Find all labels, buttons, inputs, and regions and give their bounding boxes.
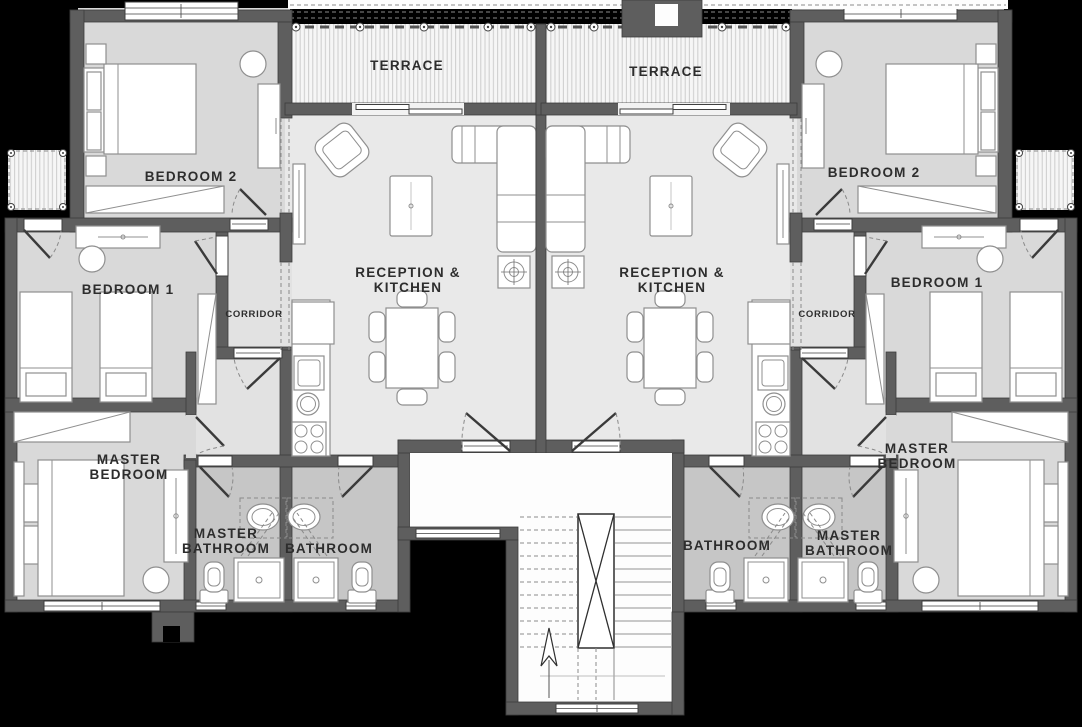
floor-plan-drawing: TERRACE TERRACE BEDROOM 2 BEDROOM 2 BEDR… [0,0,1082,727]
label-reception-right-1: RECEPTION & [619,265,724,280]
toilet [200,562,228,603]
label-master-bathroom-left-2: BATHROOM [182,541,270,556]
wardrobe [198,294,216,404]
room-balcony [8,150,66,210]
label-master-bathroom-left-1: MASTER [194,526,258,541]
stair-shaft [578,514,614,648]
master-bathroom-door-opening [198,456,232,466]
tall-cabinet [293,164,305,244]
label-bedroom1-right: BEDROOM 1 [891,275,984,290]
single-bed [100,292,152,402]
wardrobe [86,186,224,213]
single-bed [20,292,72,402]
label-master-bedroom-right-2: BEDROOM [878,456,957,471]
label-terrace-left: TERRACE [370,58,444,73]
entry-door-threshold [462,441,510,452]
window-stair-bottom [556,704,638,713]
side-table [240,51,266,77]
desk [76,226,160,248]
label-reception-right-2: KITCHEN [638,280,706,295]
sink [288,504,320,530]
label-master-bathroom-right-2: BATHROOM [805,543,893,558]
kitchen-sink [294,356,324,390]
label-master-bathroom-right-1: MASTER [817,528,881,543]
stove [292,422,326,456]
bathroom-door-opening [338,456,373,466]
desk-chair [79,246,105,272]
label-corridor-right: CORRIDOR [798,309,855,320]
label-bathroom-right: BATHROOM [683,538,771,553]
chimney [622,0,702,37]
burner [297,393,319,415]
fridge [292,302,334,344]
coffee-table [390,176,432,236]
label-master-bedroom-right-1: MASTER [885,441,949,456]
terrace-railing [288,0,541,31]
corridor-door-threshold [234,348,282,358]
side-table-crosshair [498,256,530,288]
balcony-door-opening [24,219,62,231]
sliding-door-terrace [352,103,464,115]
dresser [258,84,280,168]
stairwell [398,453,684,715]
label-reception-left-2: KITCHEN [374,280,442,295]
side-table [143,567,169,593]
floor-plan-page: TERRACE TERRACE BEDROOM 2 BEDROOM 2 BEDR… [0,0,1082,727]
nightstand [86,156,106,176]
nightstand [86,44,106,64]
double-bed [84,64,196,154]
label-reception-left-1: RECEPTION & [355,265,460,280]
roof-strip-right [792,0,1008,9]
master-bedroom-opening [186,415,196,458]
label-master-bedroom-left-1: MASTER [97,452,161,467]
label-bedroom2-right: BEDROOM 2 [828,165,921,180]
wardrobe [14,412,130,442]
bedroom1-door-opening [216,236,228,276]
window-bedroom2 [125,2,238,20]
toilet [348,562,376,603]
label-bedroom2-left: BEDROOM 2 [145,169,238,184]
window-master-bedroom [44,601,160,611]
bedroom2-door-threshold [230,219,268,230]
window-landing [416,529,500,538]
label-master-bedroom-left-2: BEDROOM [90,467,169,482]
label-corridor-left: CORRIDOR [225,309,282,320]
label-bedroom1-left: BEDROOM 1 [82,282,175,297]
label-terrace-right: TERRACE [629,64,703,79]
label-bathroom-left: BATHROOM [285,541,373,556]
exterior-step [152,612,194,642]
